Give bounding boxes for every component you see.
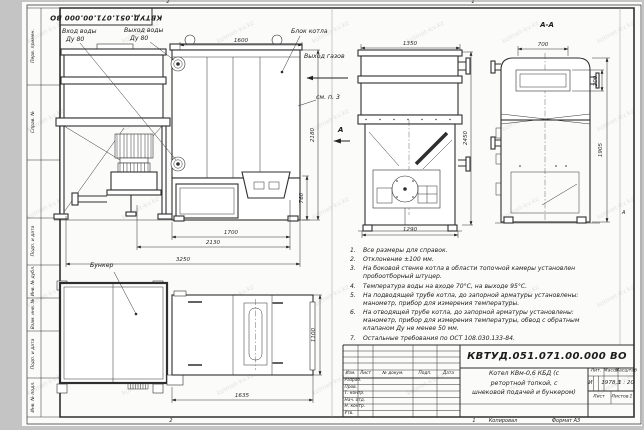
water-inlet-dn-label: Ду 80 [66,37,84,43]
note-number: 6. [347,309,363,333]
row-nach-otd: Нач. отд. [345,399,366,403]
note-text: На отводящей трубе котла, до запорной ар… [363,309,599,333]
note-number: 7. [347,335,363,343]
note-text: На подводящей трубе котла, до запорной а… [363,292,599,308]
dim-2180: 2180 [311,128,317,142]
row-t-kontr: Т. контр. [345,392,365,396]
margin-label-vzam-inv: Взам. инв. № [32,299,37,330]
front-view-linework [358,50,470,231]
dim-200: 200 [594,75,600,86]
technical-notes: 1.Все размеры для справок. 2.Отклонение … [347,247,599,344]
row-n-kontr: Н. контр. [345,405,366,409]
title-block-name-line2: ретортной топкой, с [491,381,558,387]
scale-value: 1 : 20 [618,381,634,387]
plan-view-linework [57,281,315,393]
dim-1100: 1100 [312,328,318,342]
note-item: 6.На отводящей трубе котла, до запорной … [347,309,599,333]
dim-700: 700 [538,43,549,49]
zone-mark-bottom-left: 2 [169,419,172,424]
dim-1905: 1905 [599,143,605,157]
col-izm: Изм. [345,372,355,376]
sheets-label: Листов [611,395,628,400]
dim-1350: 1350 [403,42,417,48]
note-item: 1.Все размеры для справок. [347,247,599,255]
margin-label-inv-podl: Инв. № подл. [32,381,37,412]
margin-label-podp-data-2: Подп. и дата [32,339,37,370]
row-prov: Пров. [345,386,358,390]
zone-mark-top-right: 1 [471,0,474,5]
hopper-label: Бункер [90,263,113,269]
note-text: Все размеры для справок. [363,247,599,255]
note-text: Температура воды на входе 70°С, на выход… [363,283,599,291]
col-doc: № докум. [382,372,403,376]
col-list: Лист [360,372,371,376]
scale-label: Масштаб [615,370,637,375]
note-item: 5.На подводящей трубе котла, до запорной… [347,292,599,308]
dim-3250: 3250 [176,258,190,264]
boiler-elevation-linework [170,35,302,221]
title-block-doc-number: КВТУД.051.071.00.000 ВО [467,352,627,362]
row-utv: Утв. [345,412,354,416]
format-label: Формат А3 [552,419,580,424]
note-text: На боковой стенке котла в области топочн… [363,265,599,281]
dim-2130: 2130 [206,241,220,247]
note-number: 4. [347,283,363,291]
note-item: 2.Отклонение ±100 мм. [347,256,599,264]
row-razrab: Разраб. [345,379,362,383]
margin-label-perv-primen: Перв. примен. [32,29,37,63]
dim-1600: 1600 [234,39,248,45]
margin-label-inv-dubl: Инв. № дубл. [32,266,37,297]
boiler-block-label: Блок котла [291,29,328,35]
lit-value: И [588,381,592,387]
margin-label-podp-data-1: Подп. и дата [32,226,37,257]
sheets-value: 1 [630,395,633,400]
see-note-label: см. п. 3 [316,95,340,101]
drawing-linework [0,0,644,430]
col-sign: Подп. [418,372,431,376]
col-date: Дата [443,372,454,376]
note-number: 2. [347,256,363,264]
section-title: А-А [540,22,554,29]
note-number: 1. [347,247,363,255]
section-view-linework [491,53,600,223]
dim-760: 760 [300,193,306,204]
note-item: 3.На боковой стенке котла в области топо… [347,265,599,281]
sheet-label: Лист [593,395,605,400]
title-block-name-line1: Котел КВм-0,6 КБД (с [489,371,559,377]
dim-1290: 1290 [403,228,417,234]
note-text: Остальные требования по ОСТ 108.030.133-… [363,335,599,343]
water-outlet-label: Выход воды [124,28,163,34]
note-number: 3. [347,265,363,281]
view-arrow-letter: А [338,127,343,134]
margin-label-sprav-no: Справ. № [32,111,37,133]
note-number: 5. [347,292,363,308]
note-text: Отклонение ±100 мм. [363,256,599,264]
rotated-doc-number-stamp: КВТУД.051.071.00.000 ВО [50,13,162,20]
dim-1635: 1635 [235,394,249,400]
zone-mark-top-left: 2 [166,0,169,5]
zone-mark-bottom-right: 1 [472,419,475,424]
water-outlet-dn-label: Ду 80 [130,36,148,42]
drawing-sheet-view: kolmet-kv.kzkolmet-kv.kzkolmet-kv.kzkolm… [0,0,644,430]
title-block-name-line3: шнековой подачей и бункером) [472,390,576,396]
water-inlet-label: Вход воды [62,29,97,35]
gas-outlet-label: Выход газов [304,54,345,60]
dim-2450: 2450 [464,131,470,145]
lit-label: Лит. [591,370,602,375]
note-item: 4.Температура воды на входе 70°С, на вых… [347,283,599,291]
dim-1700: 1700 [224,231,238,237]
note-item: 7.Остальные требования по ОСТ 108.030.13… [347,335,599,343]
zone-letter-right: А [622,211,625,216]
copied-by-label: Копировал [489,419,518,424]
